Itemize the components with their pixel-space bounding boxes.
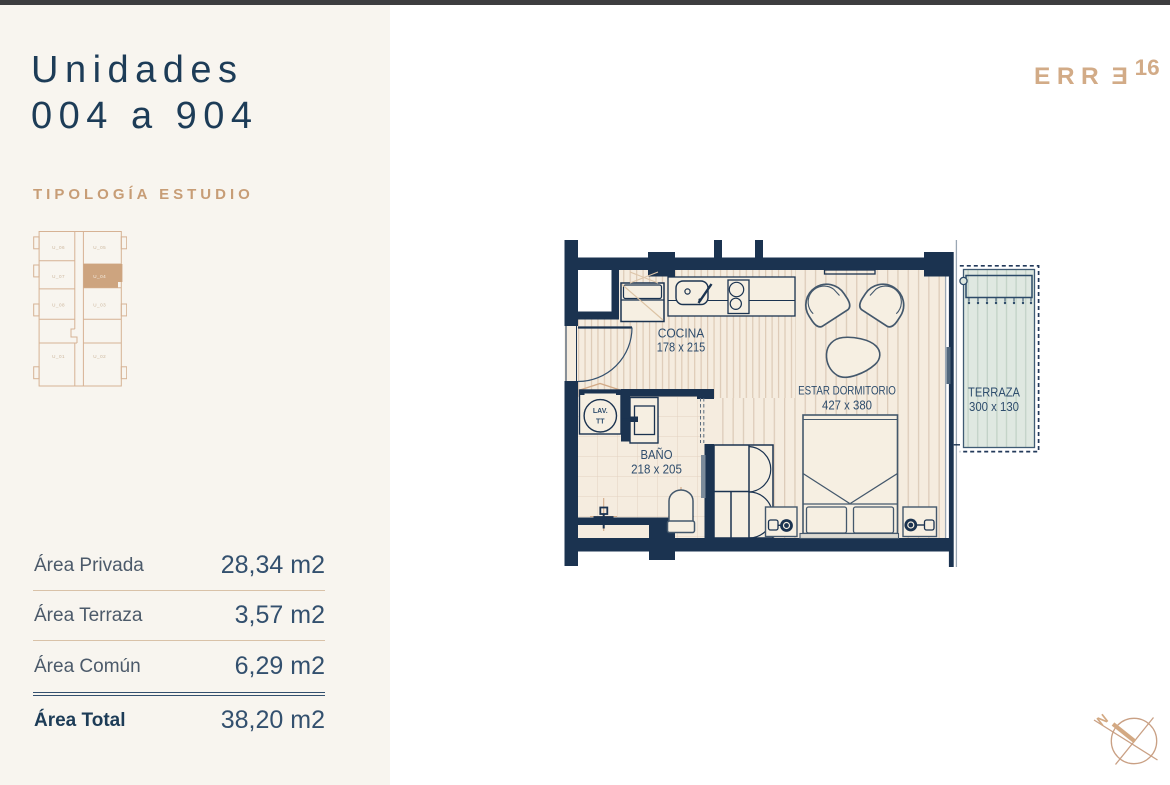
svg-text:N: N (1094, 711, 1111, 729)
svg-text:ESTAR DORMITORIO: ESTAR DORMITORIO (798, 385, 896, 398)
svg-text:LAV.: LAV. (593, 408, 608, 415)
svg-text:BAÑO: BAÑO (640, 447, 672, 462)
svg-text:218 x 205: 218 x 205 (631, 462, 682, 477)
svg-text:TT: TT (596, 419, 605, 426)
svg-text:COCINA: COCINA (658, 326, 705, 341)
svg-text:TERRAZA: TERRAZA (968, 385, 1020, 400)
svg-text:178 x 215: 178 x 215 (657, 340, 706, 355)
svg-text:427 x 380: 427 x 380 (822, 398, 872, 413)
svg-text:300 x 130: 300 x 130 (969, 399, 1019, 414)
